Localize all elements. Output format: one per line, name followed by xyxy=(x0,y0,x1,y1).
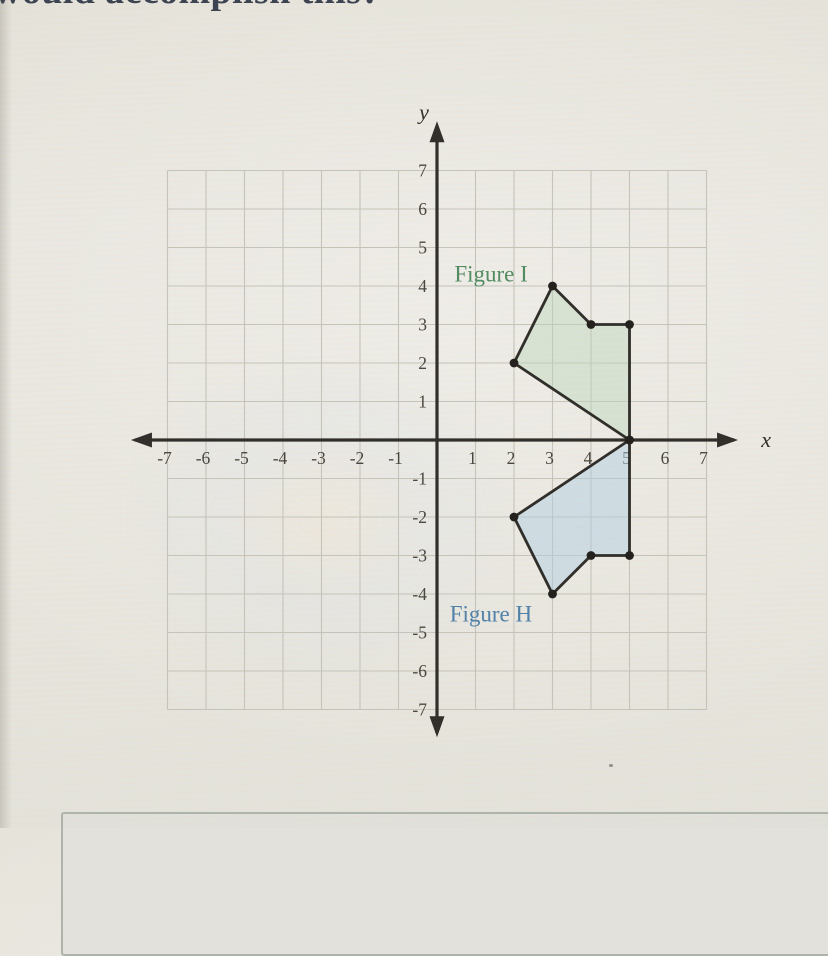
y-axis-label: y xyxy=(417,100,429,125)
vertex-dot-figure-h xyxy=(510,513,519,522)
y-tick-label: -1 xyxy=(412,469,427,489)
question-text-fragment: would accomplish this? xyxy=(0,0,381,10)
vertex-dot-figure-i xyxy=(510,359,519,368)
vertex-dot-figure-h xyxy=(587,551,596,560)
figure-polygon-figure-i xyxy=(514,286,630,440)
figure-label-figure-h: Figure H xyxy=(450,602,532,627)
vertex-dot-figure-h xyxy=(625,551,634,560)
y-tick-label: 7 xyxy=(418,161,427,181)
y-axis-arrow-up xyxy=(430,121,445,142)
x-tick-label: -7 xyxy=(157,448,172,468)
x-tick-label: -6 xyxy=(196,448,211,468)
x-tick-label: 1 xyxy=(468,448,477,468)
photo-background: { "page": { "top_text_fragment": "would … xyxy=(0,0,828,828)
x-axis-arrow-right xyxy=(717,433,738,448)
y-tick-label: -6 xyxy=(412,661,427,681)
y-tick-label: -3 xyxy=(412,546,427,566)
vertex-dot-figure-i xyxy=(587,320,596,329)
y-tick-label: 4 xyxy=(418,276,427,296)
y-tick-label: 1 xyxy=(418,392,427,412)
x-tick-label: -3 xyxy=(311,448,326,468)
answer-panel-edge xyxy=(61,812,828,956)
vertex-dot-figure-i xyxy=(625,320,634,329)
y-tick-label: 5 xyxy=(418,238,427,258)
y-tick-label: -4 xyxy=(412,584,427,604)
x-axis-arrow-left xyxy=(131,433,152,448)
y-tick-label: 2 xyxy=(418,353,427,373)
x-tick-label: 7 xyxy=(699,448,708,468)
figure-label-figure-i: Figure I xyxy=(454,261,527,286)
x-tick-label: 2 xyxy=(507,448,516,468)
y-tick-label: -5 xyxy=(412,623,427,643)
coordinate-plane: xy-7-6-5-4-3-2-11234567-7-6-5-4-3-2-1123… xyxy=(0,0,828,828)
figure-polygon-figure-h xyxy=(514,440,630,594)
x-axis-label: x xyxy=(760,427,771,452)
x-tick-label: -5 xyxy=(234,448,249,468)
vertex-dot-figure-h xyxy=(625,436,634,445)
x-tick-label: 6 xyxy=(661,448,670,468)
dust-speck xyxy=(609,764,613,767)
y-tick-label: 3 xyxy=(418,315,427,335)
vertex-dot-figure-h xyxy=(548,590,557,599)
y-tick-label: -2 xyxy=(412,507,427,527)
x-tick-label: 3 xyxy=(545,448,554,468)
vertex-dot-figure-i xyxy=(548,282,557,291)
y-axis-arrow-down xyxy=(430,716,445,737)
y-tick-label: 6 xyxy=(418,199,427,219)
x-tick-label: -2 xyxy=(350,448,365,468)
x-tick-label: -4 xyxy=(273,448,288,468)
y-tick-label: -7 xyxy=(412,700,427,720)
x-tick-label: -1 xyxy=(388,448,403,468)
